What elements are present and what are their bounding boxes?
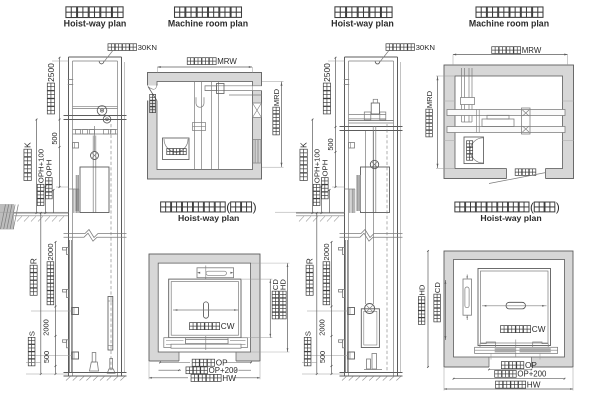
svg-text:OPH: OPH [321, 160, 330, 177]
svg-text:2500: 2500 [46, 63, 56, 82]
svg-text:Hoist-way plan: Hoist-way plan [331, 19, 394, 29]
svg-text:HW: HW [527, 381, 541, 390]
svg-text:HW: HW [222, 374, 236, 383]
svg-text:500: 500 [42, 351, 51, 363]
svg-text:2000: 2000 [322, 243, 331, 261]
svg-text:HD: HD [279, 279, 288, 290]
svg-text:2500: 2500 [322, 63, 332, 82]
svg-text:): ) [556, 201, 560, 214]
svg-text:Hoist-way plan: Hoist-way plan [64, 19, 127, 29]
svg-text:500: 500 [50, 132, 59, 144]
svg-text:2000: 2000 [46, 243, 55, 261]
svg-text:500: 500 [326, 138, 335, 150]
svg-text:): ) [253, 200, 257, 214]
svg-text:MRD: MRD [425, 90, 434, 108]
svg-text:OP+200: OP+200 [517, 370, 547, 379]
svg-text:K: K [299, 142, 309, 148]
svg-text:Machine room plan: Machine room plan [168, 19, 248, 29]
svg-text:CW: CW [532, 325, 546, 334]
svg-text:MRW: MRW [522, 46, 542, 55]
svg-text:R: R [30, 258, 39, 264]
svg-text:R: R [306, 258, 315, 264]
svg-text:MRD: MRD [272, 88, 281, 106]
svg-text:Machine room plan: Machine room plan [469, 19, 549, 29]
svg-text:OPH: OPH [45, 160, 54, 177]
svg-text:OP: OP [525, 361, 537, 370]
svg-text:HD: HD [417, 284, 426, 295]
svg-text:CW: CW [221, 322, 235, 331]
svg-text:2000: 2000 [318, 319, 327, 335]
svg-text:S: S [303, 331, 312, 336]
svg-text:(: ( [530, 201, 534, 214]
svg-text:Hoist-way plan: Hoist-way plan [480, 213, 541, 223]
svg-text:2000: 2000 [42, 319, 51, 335]
svg-text:CD: CD [433, 282, 442, 293]
svg-text:Hoist-way plan: Hoist-way plan [178, 213, 239, 223]
svg-text:500: 500 [318, 351, 327, 363]
svg-text:30KN: 30KN [416, 43, 435, 52]
svg-text:(: ( [226, 200, 230, 214]
svg-text:S: S [27, 331, 36, 336]
svg-text:K: K [23, 142, 33, 148]
svg-text:30KN: 30KN [138, 43, 157, 52]
svg-text:MRW: MRW [217, 57, 237, 66]
